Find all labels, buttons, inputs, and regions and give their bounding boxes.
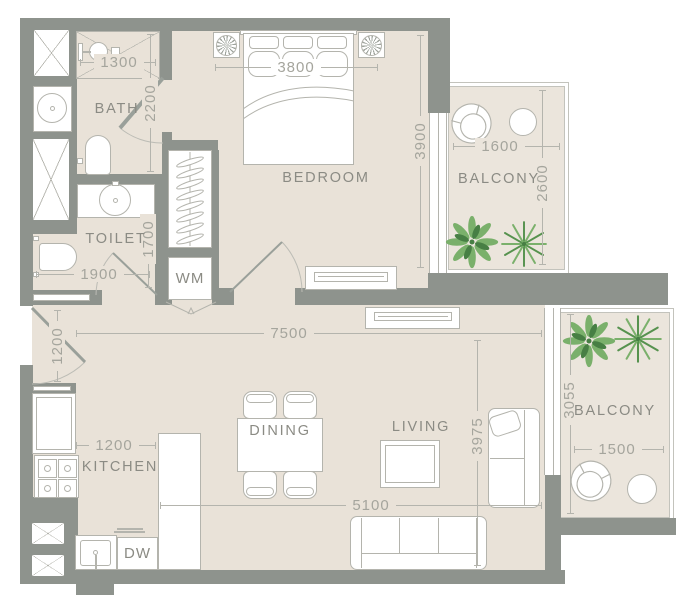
bed-cushion-2 [283,36,313,49]
ceiling-diffuser-left-icon [213,32,240,58]
entry-door [30,306,112,388]
wall-below-right-balcony [557,518,676,535]
bath-toilet-valve-icon [77,158,83,164]
sofa-cushion-line-2 [438,518,439,553]
wm-bifold-door-icon [164,301,218,317]
hob-line-2 [114,531,145,533]
kitchen-island [158,433,201,570]
dim-shower-width: 1300 [94,54,144,70]
exterior-mask-top-right [450,18,694,82]
sofa [350,516,487,570]
living-tv-line [378,316,448,317]
bedroom-tv [314,272,388,282]
wardrobe-hangers-icon [168,150,212,248]
toilet-basin-drain [113,198,118,203]
bed-cushion-3 [317,36,347,49]
sofa-cushion-line-1 [399,518,400,553]
wall-closet-right [212,150,219,290]
room-label-living: LIVING [381,419,461,435]
bath-basin-drain [50,106,55,111]
wall-bottom [20,570,565,584]
dim-kitchen-width: 1200 [89,437,139,453]
dishwasher: DW [117,537,158,570]
room-label-balcony-top: BALCONY [449,171,549,187]
dim-balcony-right-width: 1500 [592,441,642,457]
room-label-dining: DINING [247,424,313,438]
wall-bedroom-east-upper [428,18,450,113]
dim-bedroom-depth: 3900 [412,116,428,166]
sofa-back-line [362,553,476,554]
dim-living-width: 5100 [346,497,396,513]
sofa-arm-left-line [361,518,362,568]
burner-1 [38,459,57,478]
room-label-balcony-right: BALCONY [565,403,665,419]
window-living-east [544,308,561,475]
shaft-mid-left [28,134,74,225]
ceiling-diffuser-right-icon [358,32,385,58]
dining-chair-top-right [283,391,317,419]
dining-chair-top-left [243,391,277,419]
room-label-bedroom: BEDROOM [276,170,376,186]
floor-plan: WM DW [0,0,694,600]
dining-chair-bottom-left [243,471,277,499]
wall-bottom-tab [76,584,114,595]
bed-cushion-1 [249,36,279,49]
fridge-inner [36,397,72,450]
balcony-top-table [509,108,537,136]
armchair-seat-line [490,458,524,459]
room-label-toilet: TOILET [76,231,156,247]
toilet-basin-tap-icon [112,181,119,186]
shaft-bottom-left-1 [28,519,68,548]
dim-living-total-width: 7500 [264,325,314,341]
coffee-table-inner [385,445,435,483]
bath-toilet [85,135,111,175]
dim-balcony-top-width: 1600 [475,138,525,154]
armchair-back-line [524,410,525,506]
kitchen-sink-tap-stem [95,555,97,570]
wall-top [20,18,450,31]
shaft-bottom-left-2 [28,551,68,580]
room-label-bath: BATH [87,101,147,117]
bed-blanket-fold-icon [243,75,354,130]
balcony-right-table [627,474,657,504]
balcony-top-bush-plant-icon [445,215,499,269]
burner-3 [38,479,57,498]
dim-toilet-width: 1900 [74,266,124,282]
dim-living-depth: 3975 [469,411,485,461]
wall-between-balconies [428,273,668,305]
wall-bedroom-living-divider [295,288,430,305]
dim-entry-width: 1200 [49,321,65,371]
shower-pipe-line [83,51,91,53]
washing-machine: WM [168,257,212,300]
hob-line-1 [117,528,143,530]
burner-4 [58,479,77,498]
dim-bed-width: 3800 [271,59,321,75]
wall-closet-shelf [165,248,218,257]
toilet-door-threshold [33,294,90,301]
room-label-kitchen: KITCHEN [75,459,165,475]
toilet-wc-valve-top-icon [33,236,39,241]
dining-chair-bottom-right [283,471,317,499]
toilet-wc [39,243,77,271]
bedroom-tv-line [318,276,384,277]
bedroom-door [226,238,306,298]
balcony-right-palm-plant-icon [611,312,665,366]
shaft-top-left [29,25,74,81]
